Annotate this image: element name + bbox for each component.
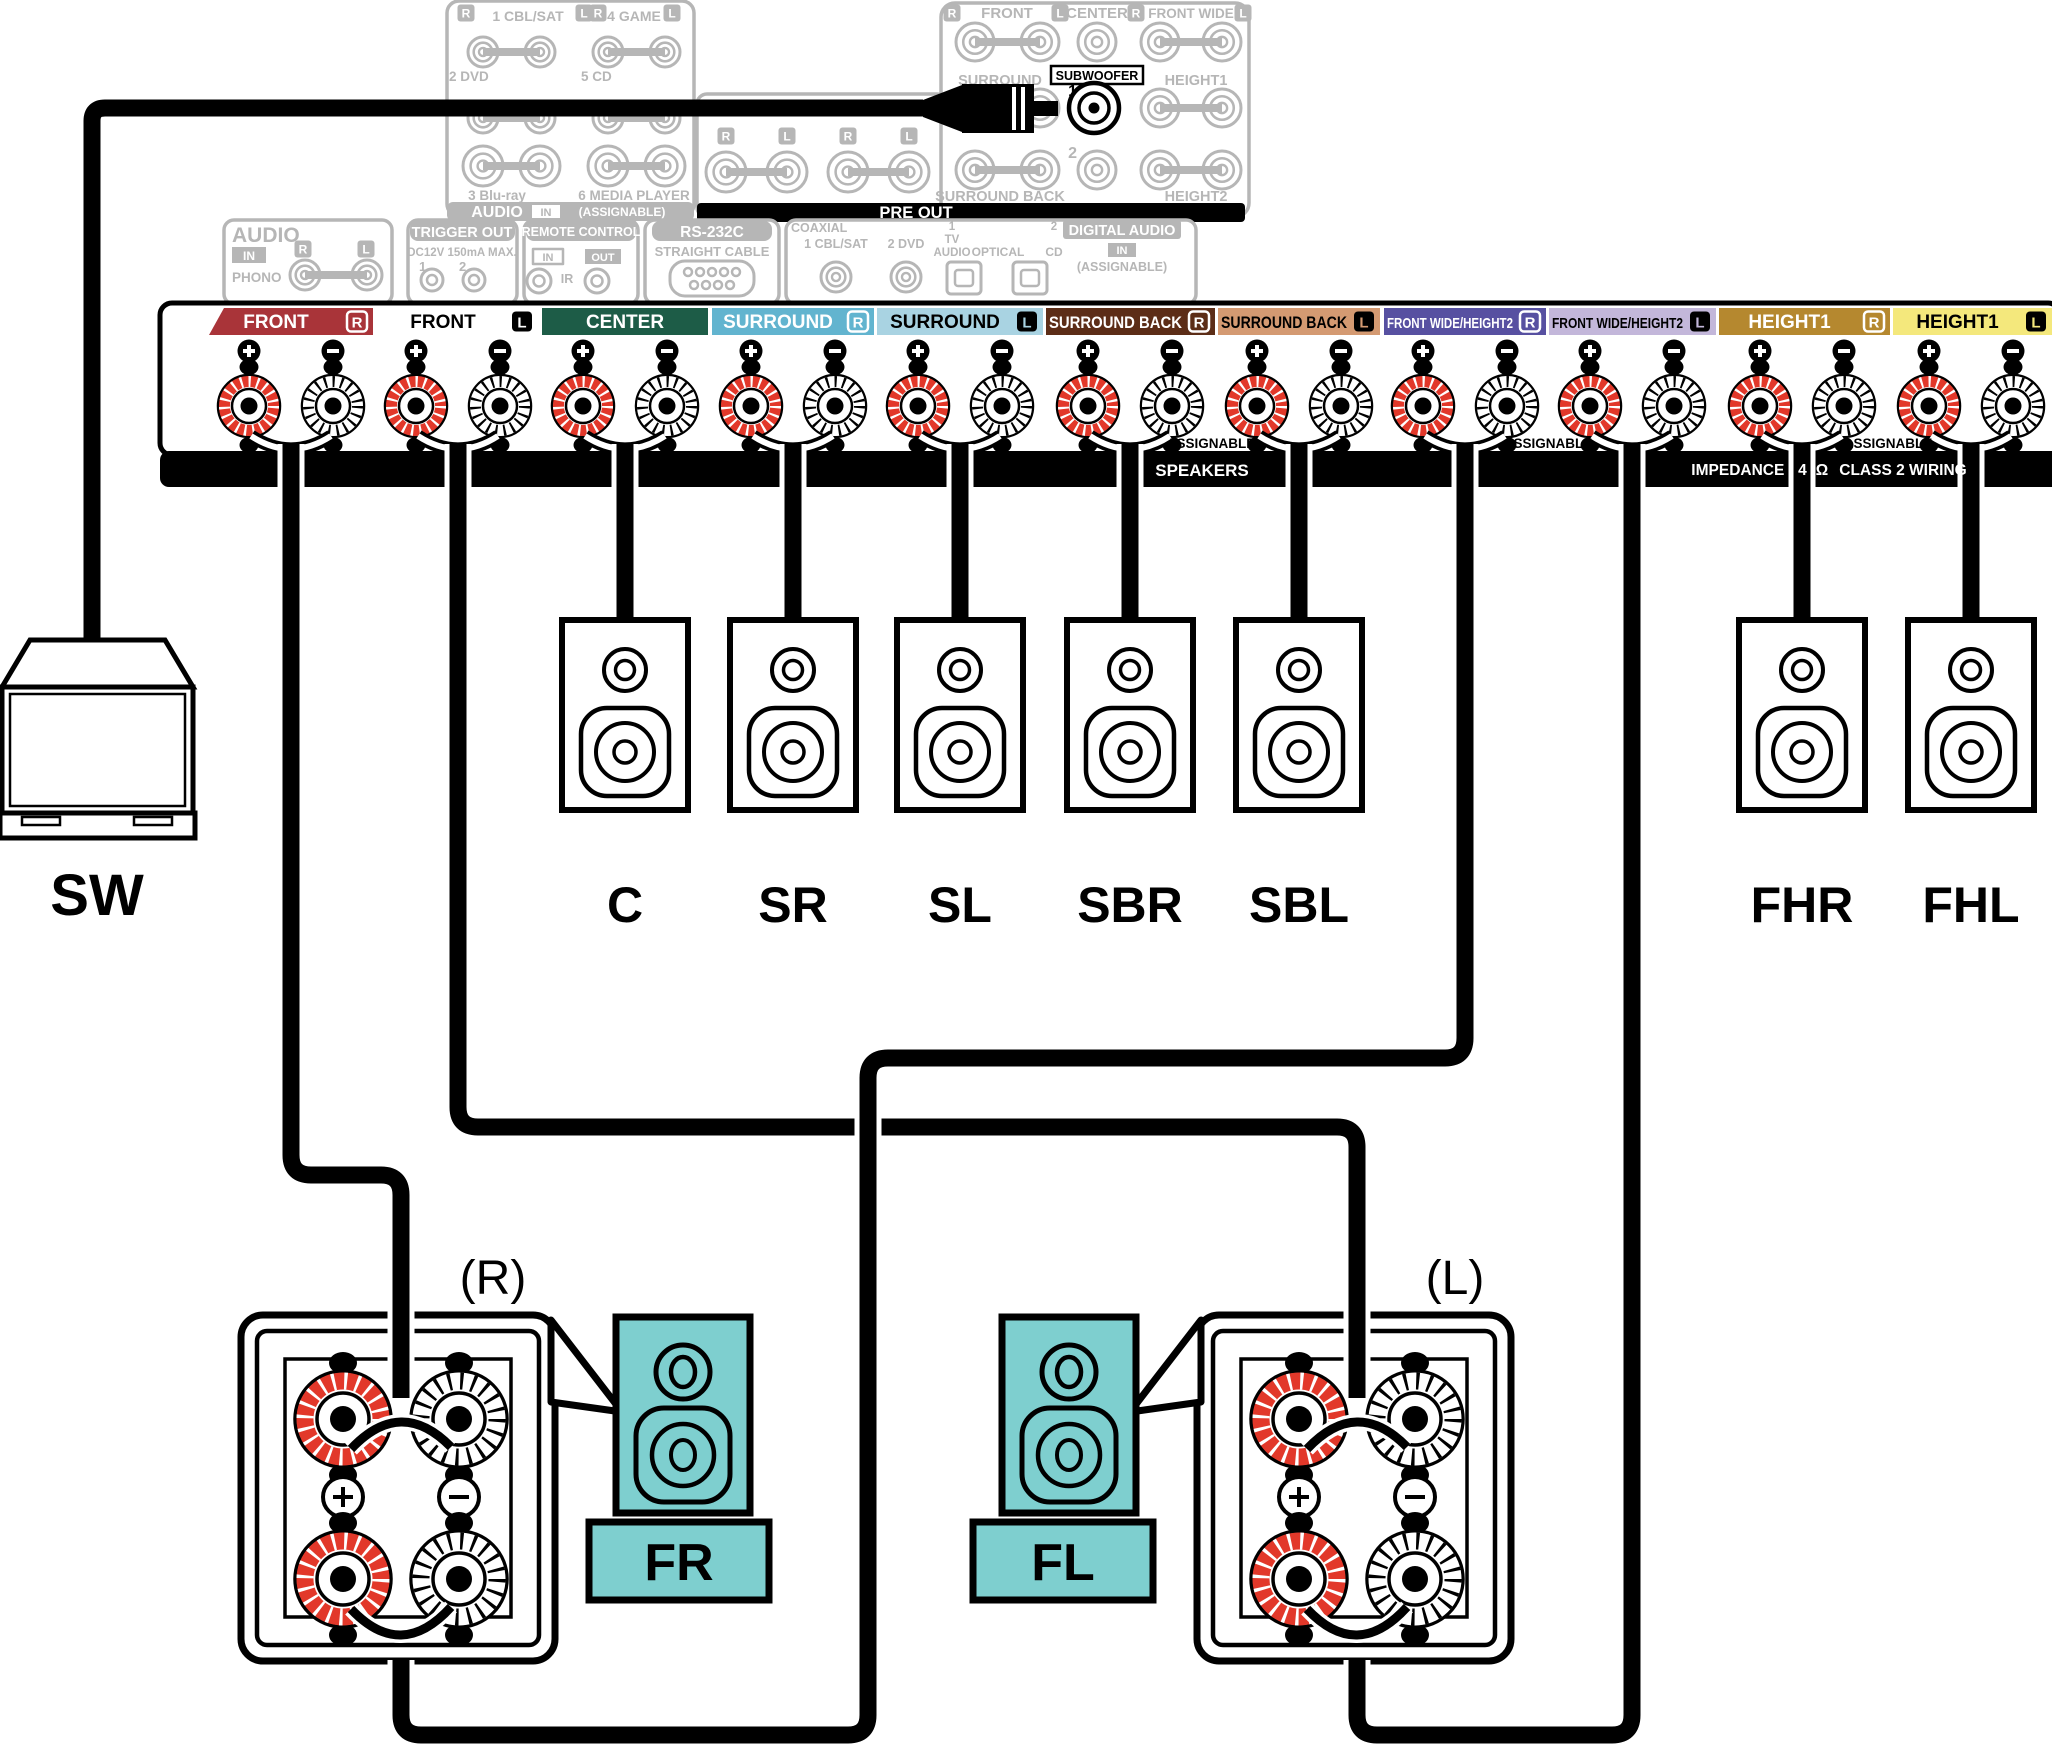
channel-letter: L: [517, 315, 526, 332]
channel-letter: L: [1359, 315, 1368, 332]
post-hole: [1402, 1566, 1428, 1592]
post-hole: [1415, 398, 1432, 415]
phono-label: PHONO: [232, 270, 282, 285]
channel-badge: R: [844, 130, 853, 144]
post-tab: [1248, 359, 1267, 375]
post-tab: [1332, 359, 1351, 375]
audio-in-badge2: IN: [243, 249, 255, 263]
rca-plug-line: [1021, 87, 1025, 130]
sw-label: SW: [50, 863, 144, 928]
post-hole: [1921, 398, 1938, 415]
dvd-label: 2 DVD: [449, 69, 489, 84]
front-left-callout: [1130, 1320, 1201, 1412]
right-mark: (R): [460, 1252, 527, 1305]
post-hole: [330, 1406, 356, 1432]
channel-label: SURROUND: [890, 312, 1000, 333]
channel-letter: R: [1869, 315, 1880, 332]
coax2-label: 2 DVD: [888, 237, 925, 251]
post-tab: [491, 359, 510, 375]
post-hole: [1666, 398, 1683, 415]
subwoofer-foot: [22, 817, 60, 825]
left-mark: (L): [1426, 1252, 1485, 1305]
bluray-label: 3 Blu-ray: [468, 188, 526, 203]
opt2-name: CD: [1045, 245, 1063, 259]
channel-badge: L: [580, 7, 587, 21]
channel-badge: L: [1056, 7, 1063, 21]
satellite-speakers: CSRSLSBRSBLFHRFHL: [562, 620, 2034, 933]
post-hole: [743, 398, 760, 415]
post-tab: [993, 359, 1012, 375]
channel-badge: L: [362, 243, 369, 257]
post-tab: [909, 359, 928, 375]
rs232-title: RS-232C: [680, 224, 744, 241]
digital-audio-title: DIGITAL AUDIO: [1069, 223, 1176, 239]
diagram-canvas: 1 CBL/SAT 4 GAME 2 DVD 5 CD 3 Blu-ray 6 …: [0, 0, 2052, 1752]
subwoofer-foot: [134, 817, 172, 825]
cblsat-label: 1 CBL/SAT: [492, 8, 564, 24]
post-hole: [659, 398, 676, 415]
post-hole: [1836, 398, 1853, 415]
post-tab: [1163, 359, 1182, 375]
post-hole: [1752, 398, 1769, 415]
post-hole: [910, 398, 927, 415]
opt1-num: 1: [949, 221, 956, 233]
post-tab: [574, 359, 593, 375]
post-hole: [241, 398, 258, 415]
post-hole: [1286, 1566, 1312, 1592]
post-hole: [1249, 398, 1266, 415]
front-right-cable-outline: [291, 444, 401, 1398]
channel-label: CENTER: [586, 312, 664, 333]
channel-letter: R: [853, 315, 864, 332]
front-left-speaker: [1002, 1317, 1136, 1513]
post-hole: [575, 398, 592, 415]
post-tab: [1498, 359, 1517, 375]
remote-title: REMOTE CONTROL: [522, 225, 641, 239]
channel-badge: L: [668, 7, 675, 21]
post-tab: [658, 359, 677, 375]
post-hole: [1402, 1406, 1428, 1432]
remote-out: OUT: [591, 252, 615, 264]
class2-label: CLASS 2 WIRING: [1839, 462, 1966, 479]
game-label: 4 GAME: [607, 8, 661, 24]
front-left-cable: [458, 444, 1357, 1398]
post-hole: [446, 1406, 472, 1432]
post-hole: [446, 1566, 472, 1592]
channel-label: FRONT: [410, 312, 476, 333]
post-hole: [1080, 398, 1097, 415]
rca-plug-line: [1012, 87, 1016, 130]
front-right-callout: [551, 1320, 622, 1412]
digital-in: IN: [1117, 245, 1128, 257]
channel-badge: R: [594, 7, 603, 21]
preout-surroundback-label: SURROUND BACK: [935, 189, 1065, 205]
subwoofer-top: [2, 640, 193, 687]
speaker-label: SL: [928, 877, 992, 933]
post-hole: [994, 398, 1011, 415]
post-tab: [1665, 359, 1684, 375]
assignable-label: ASSIGNABLE: [1844, 436, 1933, 451]
channel-letter: R: [1525, 315, 1536, 332]
post-hole: [325, 398, 342, 415]
speaker-label: SR: [758, 877, 827, 933]
optical-label: OPTICAL: [972, 245, 1025, 259]
channel-badge: R: [299, 243, 308, 257]
fl-tag: FL: [1031, 1534, 1095, 1592]
channel-badge: R: [948, 7, 957, 21]
front-right-cable: [291, 444, 401, 1398]
assignable-label: ASSIGNABLE: [1504, 436, 1593, 451]
trigger-out-sub: DC12V 150mA MAX.: [407, 247, 517, 259]
subwoofer-jack-center: [1089, 103, 1100, 114]
assignable-label: ASSIGNABLE: [1167, 436, 1256, 451]
post-tab: [324, 359, 343, 375]
speaker-label: FHR: [1751, 877, 1854, 933]
post-hole: [1286, 1406, 1312, 1432]
channel-badge: L: [1239, 7, 1246, 21]
front-left-cable-outline: [458, 444, 1357, 1398]
post-tab: [1920, 359, 1939, 375]
post-hole: [1164, 398, 1181, 415]
impedance-label: IMPEDANCE : 4: [1691, 462, 1807, 479]
post-tab: [1414, 359, 1433, 375]
speaker-label: SBL: [1249, 877, 1349, 933]
opt1-b: AUDIO: [933, 247, 970, 259]
remote-ir: IR: [561, 272, 574, 286]
channel-letter: R: [352, 315, 363, 332]
preout-height1-label: HEIGHT1: [1165, 73, 1228, 89]
opt2-num: 2: [1051, 221, 1057, 233]
preout-sub2-label: 2: [1068, 145, 1077, 162]
channel-label: SURROUND BACK: [1049, 313, 1183, 332]
post-hole: [330, 1566, 356, 1592]
preout-height2-label: HEIGHT2: [1165, 189, 1228, 205]
ohm-label: Ω: [1816, 462, 1828, 479]
preout-center-label: CENTER: [1066, 5, 1128, 22]
speaker-label: C: [607, 877, 643, 933]
post-tab: [742, 359, 761, 375]
audio-title: AUDIO: [232, 224, 300, 247]
post-tab: [2004, 359, 2023, 375]
channel-label: FRONT WIDE/HEIGHT2: [1387, 315, 1513, 332]
post-hole: [827, 398, 844, 415]
preout-front-label: FRONT: [981, 5, 1033, 22]
channel-label: SURROUND BACK: [1221, 313, 1348, 332]
audio-in-bar-note: (ASSIGNABLE): [579, 205, 666, 219]
post-tab: [1751, 359, 1770, 375]
post-tab: [240, 359, 259, 375]
channel-letter: L: [1022, 315, 1031, 332]
audio-in-badge: IN: [541, 207, 552, 219]
post-tab: [407, 359, 426, 375]
post-hole: [2005, 398, 2022, 415]
channel-badge: R: [1132, 7, 1141, 21]
trigger-out-title: TRIGGER OUT: [412, 225, 513, 241]
rs232-sub: STRAIGHT CABLE: [655, 244, 770, 259]
opt1-a: TV: [945, 234, 960, 246]
post-tab: [826, 359, 845, 375]
fr-tag: FR: [644, 1534, 713, 1592]
mediaplayer-label: 6 MEDIA PLAYER: [578, 188, 690, 203]
channel-letter: L: [2031, 315, 2040, 332]
channel-label: HEIGHT1: [1916, 312, 1999, 333]
post-tab: [1079, 359, 1098, 375]
channel-letter: L: [1695, 315, 1704, 332]
post-hole: [1333, 398, 1350, 415]
rca-plug-tip: [1034, 101, 1058, 116]
rs232-connector: [670, 261, 754, 296]
coax1-label: 1 CBL/SAT: [804, 237, 868, 251]
preout-frontwide-label: FRONT WIDE: [1148, 6, 1234, 21]
channel-label: FRONT WIDE/HEIGHT2: [1552, 315, 1683, 332]
front-right-speaker: [616, 1317, 750, 1513]
post-hole: [408, 398, 425, 415]
speaker-label: SBR: [1077, 877, 1183, 933]
post-tab: [1581, 359, 1600, 375]
remote-in: IN: [543, 252, 554, 264]
channel-badge: R: [722, 130, 731, 144]
subwoofer-front: [2, 687, 193, 813]
receiver-rear-panel: 1 CBL/SAT 4 GAME 2 DVD 5 CD 3 Blu-ray 6 …: [224, 1, 1252, 304]
channel-badge: L: [905, 130, 912, 144]
speaker-label: FHL: [1922, 877, 2019, 933]
digital-note: (ASSIGNABLE): [1077, 260, 1167, 274]
channel-letter: R: [1194, 315, 1205, 332]
coaxial-label: COAXIAL: [791, 221, 848, 235]
speaker-connection-diagram: 1 CBL/SAT 4 GAME 2 DVD 5 CD 3 Blu-ray 6 …: [0, 0, 2052, 1752]
subwoofer-label: SUBWOOFER: [1056, 69, 1139, 83]
channel-label: HEIGHT1: [1748, 312, 1831, 333]
speakers-bar-label: SPEAKERS: [1155, 461, 1249, 480]
channel-label: SURROUND: [723, 312, 833, 333]
channel-label: FRONT: [243, 312, 309, 333]
post-tab: [1835, 359, 1854, 375]
channel-badge: R: [462, 7, 471, 21]
channel-badge: L: [783, 130, 790, 144]
post-hole: [492, 398, 509, 415]
cd-label: 5 CD: [581, 69, 612, 84]
post-hole: [1582, 398, 1599, 415]
post-hole: [1499, 398, 1516, 415]
